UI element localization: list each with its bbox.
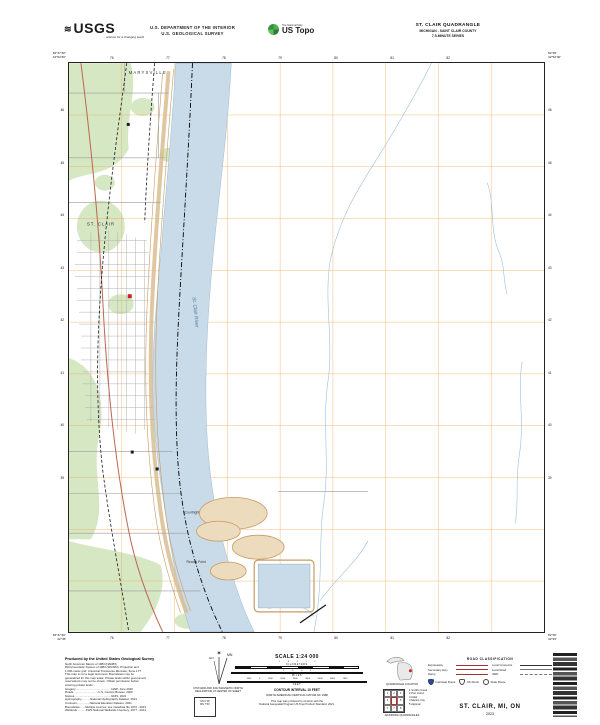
dept-line1: U.S. DEPARTMENT OF THE INTERIOR: [150, 25, 235, 31]
sheet-title-block: ST. CLAIR, MI, ON 2023: [428, 704, 552, 716]
streams: [268, 63, 522, 632]
production-title: Produced by the United States Geological…: [65, 657, 205, 661]
contour-interval-note: CONTOUR INTERVAL 10 FEET: [217, 688, 377, 692]
ft-label: FEET: [217, 683, 377, 686]
label-st-clair: ST. CLAIR: [87, 222, 115, 227]
state-route-label: State Route: [491, 680, 506, 684]
state-route-shield-icon: [483, 679, 489, 685]
scale-block: SCALE 1:24 000 1 .5 0 1 2 KILOMETERS 1 .…: [217, 654, 377, 707]
grid-north-label: GN: [209, 656, 214, 660]
sheet-year: 2023: [428, 712, 552, 716]
connector-line-sample: [520, 665, 552, 666]
map-canvas: MARYSVILLE ST. CLAIR St. Clair River Cou…: [68, 62, 545, 633]
department-heading: U.S. DEPARTMENT OF THE INTERIOR U.S. GEO…: [150, 25, 235, 36]
settling-pond: [258, 564, 310, 608]
legend-expressway: Expressway: [428, 663, 454, 667]
interstate-shield-icon: [428, 679, 434, 685]
label-courtright: Courtright: [185, 510, 200, 514]
corner-coordinates-top-left: 82°37'30"42°52'30": [30, 52, 66, 60]
quad-title: ST. CLAIR QUADRANGLE: [377, 23, 519, 28]
quad-subtitle: MICHIGAN - SAINT CLAIR COUNTY: [377, 29, 519, 33]
utm-grid-labels-top: 76777879808182: [110, 56, 450, 60]
building-marker-3: [127, 123, 130, 126]
road-classification-title: ROAD CLASSIFICATION: [428, 657, 552, 661]
quadrangle-heading: ST. CLAIR QUADRANGLE MICHIGAN - SAINT CL…: [377, 23, 519, 38]
ustopo-globe-icon: [268, 24, 279, 35]
ustopo-logo: The National Map US Topo: [268, 24, 314, 35]
red-building-marker: [128, 294, 132, 298]
metadata-barcode: [553, 653, 577, 717]
dept-line2: U.S. GEOLOGICAL SURVEY: [150, 31, 235, 37]
scale-bar-kilometers: [235, 666, 359, 668]
expressway-line-sample: [456, 665, 488, 666]
fwd-line-sample: [520, 674, 552, 675]
building-marker: [131, 451, 134, 454]
declination-values-box: GN 0°19' MN 7°30': [194, 697, 216, 717]
michigan-state-icon: [385, 652, 419, 682]
quad-location-dot: [409, 669, 412, 672]
product-standard-note: This map was produced to conform with th…: [217, 700, 377, 707]
label-marysville: MARYSVILLE: [129, 70, 167, 75]
legend-secondary-hwy: Secondary Hwy: [428, 668, 454, 672]
utm-grid-labels-left: 4645444342414039: [52, 108, 64, 480]
mi-label: MILES: [217, 674, 377, 677]
legend-local-road: Local Road: [492, 668, 518, 672]
utm-grid-lines: [69, 63, 544, 632]
corner-coordinates-bottom-right: 82°30'42°45': [548, 634, 588, 642]
usgs-wave-icon: ≋: [64, 25, 72, 34]
legend-4wd: 4WD: [492, 672, 518, 676]
vertical-datum-note: NORTH AMERICAN VERTICAL DATUM OF 1988: [217, 693, 377, 697]
legend-local-connector: Local Connector: [492, 663, 518, 667]
adjoining-quadrangles-list: 1 Smiths Creek2 Port Huron3 Adair4 Marin…: [409, 689, 427, 706]
building-marker-2: [156, 467, 159, 470]
production-credits: Produced by the United States Geological…: [65, 657, 205, 713]
usgs-topo-sheet: ≋ USGS science for a changing world U.S.…: [0, 0, 600, 725]
us-route-shield-icon: [459, 679, 465, 685]
scale-title: SCALE 1:24 000: [217, 654, 377, 660]
current-quad-cell: [391, 697, 398, 704]
utm-grid-labels-bottom: 76777879808182: [110, 636, 450, 640]
road-classification-legend: ROAD CLASSIFICATION Expressway Secondary…: [428, 657, 552, 685]
ustopo-brand: US Topo: [282, 27, 314, 35]
label-recors-point: Recors Point: [187, 560, 206, 564]
us-route-label: US Route: [467, 680, 479, 684]
usgs-logo: ≋ USGS science for a changing world: [64, 22, 144, 39]
local-road-line-sample: [520, 669, 552, 670]
adjoining-quadrangles-grid: 1 2 3 4 5 6 7 8: [383, 689, 405, 713]
quad-series: 7.5-MINUTE SERIES: [377, 34, 519, 38]
secondary-line-sample: [456, 669, 488, 670]
legend-ramp: Ramp: [428, 672, 454, 676]
corner-coordinates-top-right: 82°30'42°52'30": [548, 52, 588, 60]
corner-coordinates-bottom-left: 82°37'30"42°45': [30, 634, 66, 642]
usgs-brand: USGS: [74, 22, 116, 34]
interstate-route-label: Interstate Route: [436, 680, 456, 684]
utm-grid-labels-right: 4645444342414039: [548, 108, 560, 480]
sheet-title: ST. CLAIR, MI, ON: [428, 704, 552, 710]
ramp-line-sample: [456, 674, 488, 675]
